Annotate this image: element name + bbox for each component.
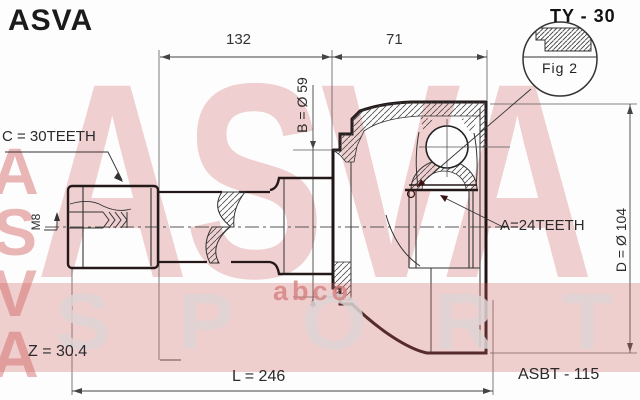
part-code: TY - 30	[550, 6, 616, 27]
leader-outer-spline	[5, 152, 123, 182]
dim-l-label: L = 246	[232, 368, 285, 386]
figure-detail-circle	[523, 22, 597, 96]
outer-spline-label: C = 30TEETH	[2, 128, 96, 145]
dim-l	[72, 388, 493, 394]
dim-d-label: D = Ø 104	[613, 194, 629, 286]
watermark-small-text: abco	[273, 276, 352, 307]
boot-kit-code: ASBT - 115	[518, 366, 599, 384]
dim-132-label: 132	[226, 31, 251, 48]
dim-132	[160, 54, 332, 60]
inner-spline-label: A=24TEETH	[500, 217, 585, 234]
dim-b-label: B = Ø 59	[294, 66, 310, 144]
thread-label: M8	[29, 207, 45, 237]
figure-callout-label: Fig 2	[533, 60, 587, 76]
dim-71-label: 71	[386, 31, 403, 48]
dim-71	[332, 54, 487, 60]
technical-drawing-page: ASVA ASVA	[0, 0, 640, 400]
dim-z-label: Z = 30.4	[28, 343, 87, 361]
brand-logo: ASVA	[8, 4, 93, 38]
shaft-drawing	[68, 178, 333, 274]
